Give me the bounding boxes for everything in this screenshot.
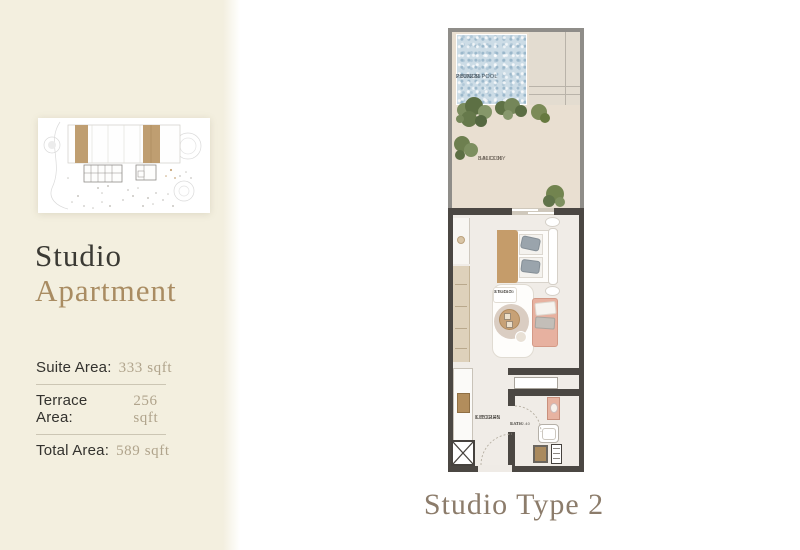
plant-bush-right [531,104,550,123]
suite-area-label: Suite Area: [36,359,112,376]
keyplan-building-band [68,125,180,163]
floor-plan: PLUNGE POOL 2.80X2.55 BALCONY 3.80X3.35 … [448,28,584,472]
plant-palm-left [456,97,492,127]
page-title: Studio Apartment [35,238,177,309]
bath-door-swing [515,406,541,432]
keyplan-highlight-unit-right [143,125,160,163]
terrace-area-row: Terrace Area: 256 sqft [36,385,186,434]
total-area-value: 589 sqft [116,443,170,460]
suite-area-row: Suite Area: 333 sqft [36,352,186,384]
keyplan-tan-dots [165,169,176,179]
suite-area-value: 333 sqft [119,360,173,377]
studio-label: STUDIO 3.50X5.20 [493,287,517,303]
bath-dims: 1.33X2.40 [510,421,530,427]
total-area-label: Total Area: [36,442,109,459]
entry-door-swing [481,434,512,465]
area-summary: Suite Area: 333 sqft Terrace Area: 256 s… [36,352,186,467]
title-line-apartment: Apartment [35,273,177,308]
studio-dims: 3.50X5.20 [494,289,514,295]
plant-bush-bottom-left [454,136,478,160]
plan-caption: Studio Type 2 [414,488,614,522]
plant-cluster-middle [495,98,527,120]
shaft-cross-icon [453,442,473,464]
key-plan-map [38,118,210,213]
key-plan [38,118,210,213]
kitchen-dims: 1.85X2.45 [475,415,500,422]
plunge-pool-dims: 2.80X2.55 [456,74,481,81]
keyplan-unit-details [84,165,156,182]
sidebar: Studio Apartment Suite Area: 333 sqft Te… [0,0,240,550]
plan-overlay [448,28,584,472]
title-line-studio: Studio [35,238,177,273]
total-area-row: Total Area: 589 sqft [36,435,186,467]
terrace-area-value: 256 sqft [133,393,186,427]
terrace-area-label: Terrace Area: [36,392,126,426]
balcony-dims: 3.80X3.35 [478,156,503,163]
keyplan-highlight-unit-left [75,125,88,163]
plant-bush-bottom-right [543,185,565,207]
keyplan-path-road [51,122,68,209]
